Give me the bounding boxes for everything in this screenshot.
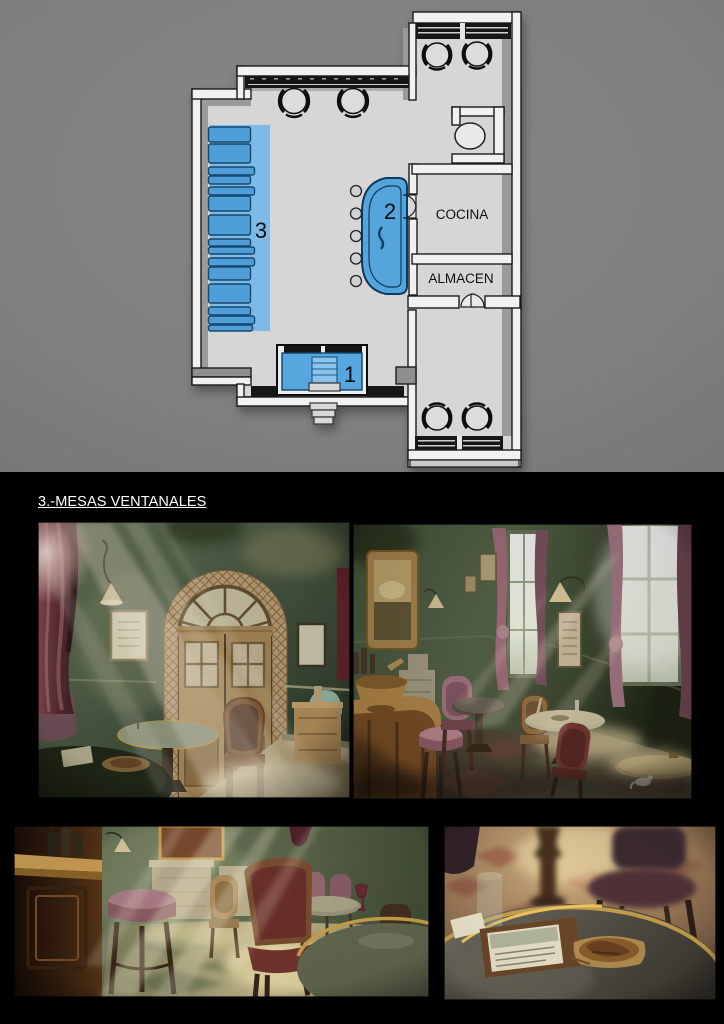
svg-text:COCINA: COCINA xyxy=(436,207,489,222)
svg-text:1: 1 xyxy=(344,362,356,387)
svg-text:2: 2 xyxy=(384,199,396,224)
svg-text:ALMACEN: ALMACEN xyxy=(428,271,493,286)
svg-text:3: 3 xyxy=(255,218,267,243)
